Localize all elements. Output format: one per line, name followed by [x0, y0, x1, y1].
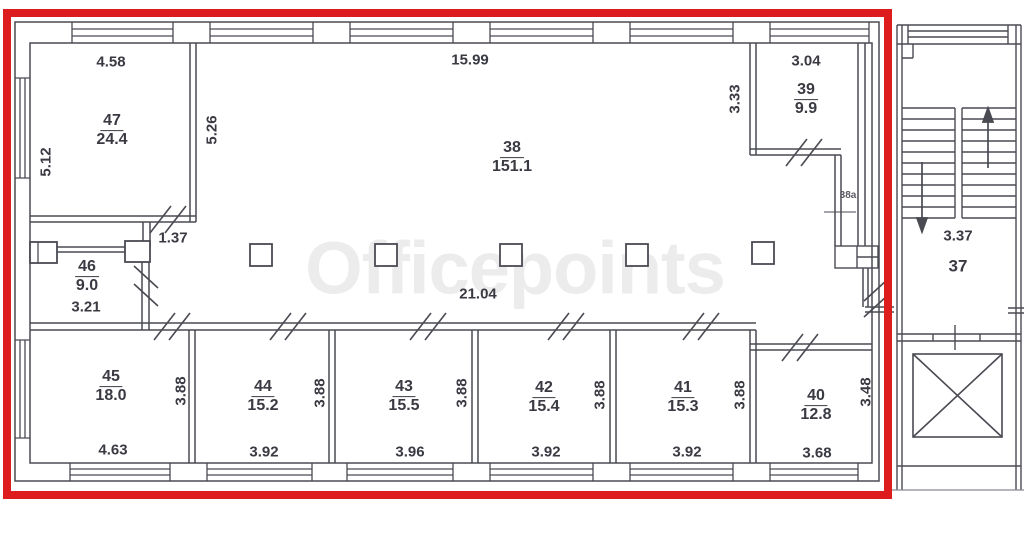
room-number: 44	[251, 378, 275, 397]
room-area: 24.4	[96, 132, 127, 150]
room-number: 47	[100, 112, 124, 131]
room-number: 46	[75, 258, 99, 277]
room-label-46: 46 9.0	[75, 258, 99, 296]
room-label-38: 38 151.1	[492, 139, 532, 177]
room-area: 18.0	[95, 388, 126, 406]
dim-47-right: 5.26	[205, 115, 220, 144]
dim-47-top: 4.58	[96, 55, 125, 70]
dim-41-right: 3.88	[733, 380, 748, 409]
dim-39-left: 3.33	[728, 84, 743, 113]
dim-42-right: 3.88	[593, 380, 608, 409]
room-label-39: 39 9.9	[794, 81, 818, 119]
room-label-40: 40 12.8	[800, 387, 831, 425]
room-label-44: 44 15.2	[247, 378, 278, 416]
room-number: 45	[99, 368, 123, 387]
dim-46-bottom: 3.21	[71, 300, 100, 315]
dim-37-stair: 3.37	[943, 229, 972, 244]
dim-44-right: 3.88	[313, 378, 328, 407]
dim-42-bottom: 3.92	[531, 445, 560, 460]
room-label-43: 43 15.5	[388, 378, 419, 416]
dim-38-top: 15.99	[451, 53, 489, 68]
floor-plan-canvas: Officepoints	[0, 0, 1024, 536]
room-label-41: 41 15.3	[667, 379, 698, 417]
room-area: 15.5	[388, 398, 419, 416]
dim-46-door: 1.37	[158, 231, 187, 246]
dim-43-bottom: 3.96	[395, 445, 424, 460]
room-area: 151.1	[492, 159, 532, 177]
room-number: 40	[804, 387, 828, 406]
dim-45-bottom: 4.63	[98, 443, 127, 458]
room-area: 15.2	[247, 398, 278, 416]
room-number: 38	[500, 139, 524, 158]
dim-44-bottom: 3.92	[249, 445, 278, 460]
dim-45-right: 3.88	[174, 376, 189, 405]
dim-38-bottom: 21.04	[459, 287, 497, 302]
room-label-42: 42 15.4	[528, 379, 559, 417]
dim-41-bottom: 3.92	[672, 445, 701, 460]
room-number: 39	[794, 81, 818, 100]
room-area: 9.0	[76, 278, 98, 296]
room-number: 41	[671, 379, 695, 398]
room-number: 43	[392, 378, 416, 397]
dim-39-top: 3.04	[791, 54, 820, 69]
dim-40-right: 3.48	[859, 377, 874, 406]
room-area: 15.3	[667, 399, 698, 417]
dim-43-right: 3.88	[455, 378, 470, 407]
dim-40-bottom: 3.68	[802, 446, 831, 461]
plan-labels: 4.58 15.99 3.04 1.37 3.21 21.04 4.63 3.9…	[0, 0, 1024, 536]
room-label-37: 37	[949, 258, 968, 275]
room-label-47: 47 24.4	[96, 112, 127, 150]
room-label-38a: 38a	[840, 191, 857, 201]
room-area: 12.8	[800, 407, 831, 425]
room-area: 9.9	[795, 101, 817, 119]
room-area: 15.4	[528, 399, 559, 417]
room-label-45: 45 18.0	[95, 368, 126, 406]
room-number: 42	[532, 379, 556, 398]
dim-47-left: 5.12	[39, 147, 54, 176]
